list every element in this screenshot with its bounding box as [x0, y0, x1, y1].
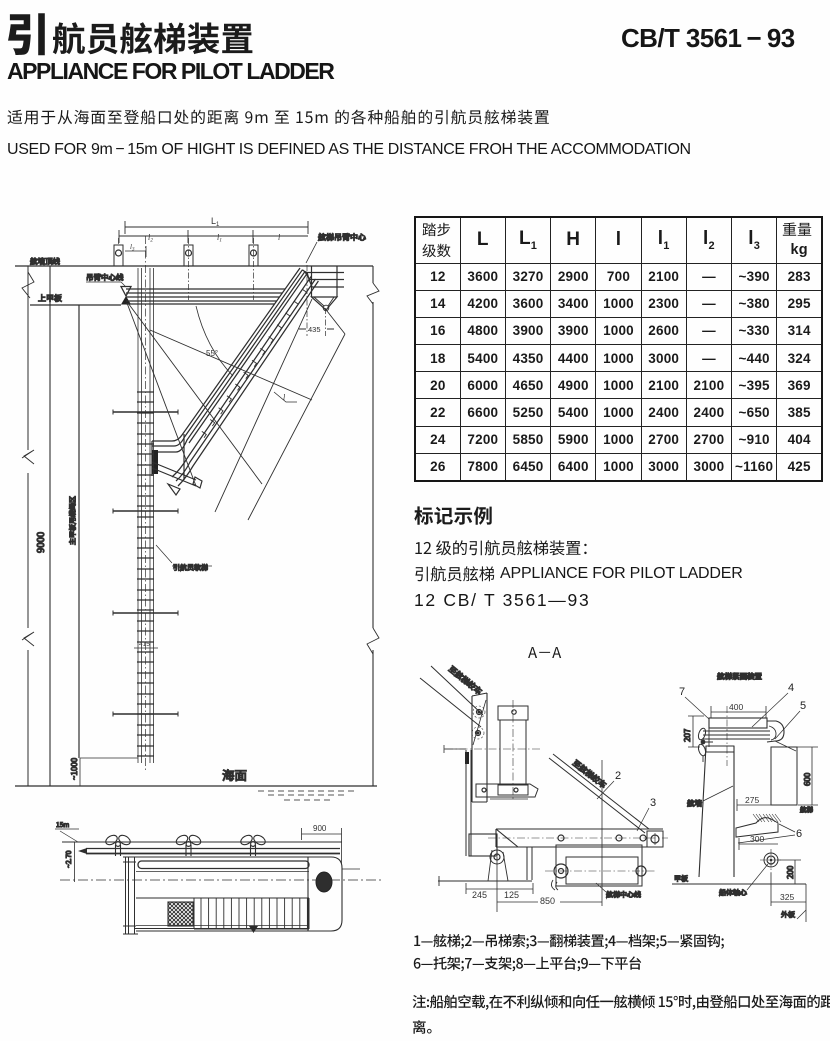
- svg-text:2: 2: [615, 770, 621, 782]
- svg-text:5: 5: [800, 700, 806, 712]
- svg-text:125: 125: [504, 890, 519, 900]
- svg-text:l2: l2: [148, 233, 153, 244]
- svg-text:300: 300: [750, 834, 764, 844]
- svg-text:55°: 55°: [206, 349, 218, 358]
- svg-text:275: 275: [745, 795, 759, 805]
- svg-text:4: 4: [788, 682, 794, 694]
- svg-text:6: 6: [796, 828, 802, 840]
- svg-text:900: 900: [313, 824, 327, 833]
- svg-text:850: 850: [540, 896, 555, 906]
- svg-text:3: 3: [650, 797, 656, 809]
- svg-text:325: 325: [780, 892, 794, 902]
- svg-text:435: 435: [308, 325, 321, 334]
- svg-text:7: 7: [679, 686, 685, 698]
- svg-text:400: 400: [729, 702, 743, 712]
- svg-text:l1: l1: [217, 233, 222, 244]
- svg-text:l: l: [283, 393, 286, 402]
- svg-text:245: 245: [472, 890, 487, 900]
- svg-text:415: 415: [139, 641, 150, 648]
- svg-text:L1: L1: [211, 216, 220, 228]
- svg-text:l: l: [278, 233, 281, 242]
